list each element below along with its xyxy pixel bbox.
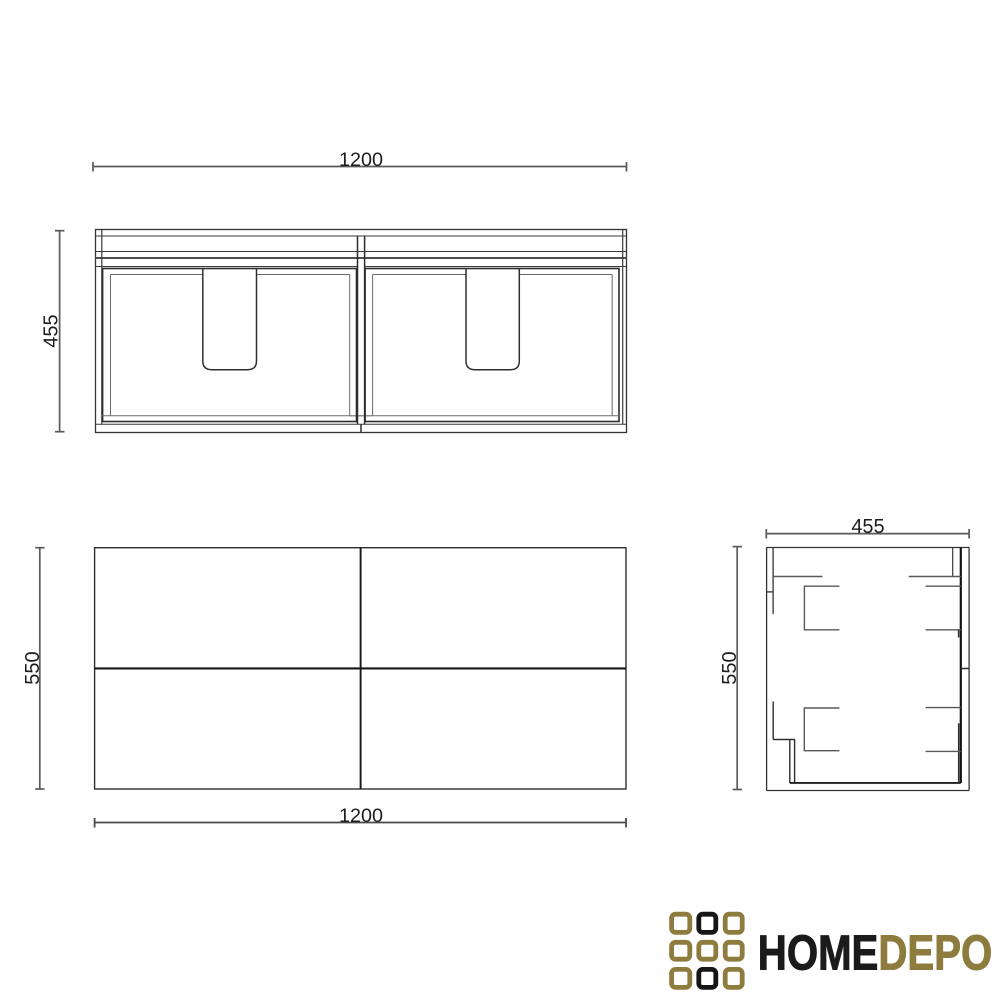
svg-text:HOMEDEPO: HOMEDEPO bbox=[758, 924, 992, 980]
svg-text:1200: 1200 bbox=[339, 149, 383, 171]
svg-text:455: 455 bbox=[851, 516, 884, 538]
svg-text:1200: 1200 bbox=[339, 805, 383, 827]
svg-text:550: 550 bbox=[22, 651, 44, 684]
svg-text:455: 455 bbox=[41, 314, 63, 347]
svg-text:550: 550 bbox=[719, 651, 741, 684]
